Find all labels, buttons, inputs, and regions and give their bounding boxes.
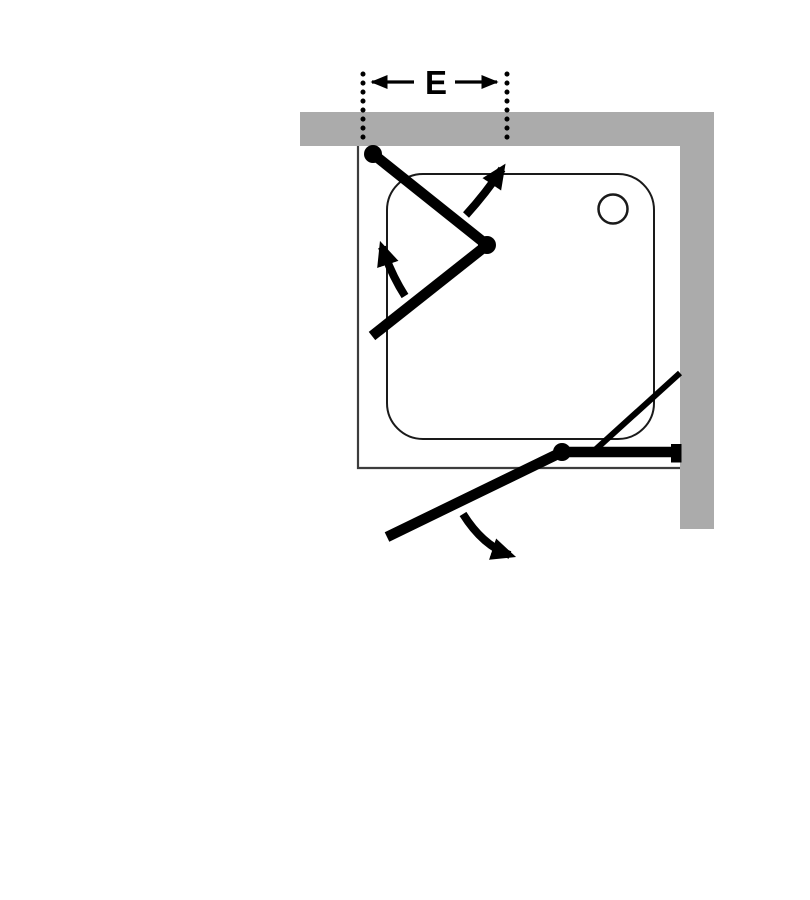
drain-circle — [599, 195, 628, 224]
tray-outline — [387, 174, 654, 439]
fold-dot — [478, 236, 496, 254]
dimension-label: E — [425, 64, 447, 101]
wall-right — [680, 112, 714, 529]
shower-enclosure-diagram: E — [0, 0, 810, 900]
curved-arrow-open-icon — [466, 169, 502, 215]
door-half-open — [595, 373, 680, 450]
wall-profile-cap — [671, 444, 682, 463]
curved-arrow-fold-icon — [382, 247, 405, 296]
curved-arrow-swing-icon — [463, 514, 510, 555]
pivot-dot-wall — [364, 145, 382, 163]
pivot-dot — [553, 443, 571, 461]
bifold-panel-1 — [373, 154, 487, 245]
diagram-page: E — [0, 0, 810, 900]
shower-tray — [387, 174, 654, 439]
pivot-door — [387, 373, 682, 555]
